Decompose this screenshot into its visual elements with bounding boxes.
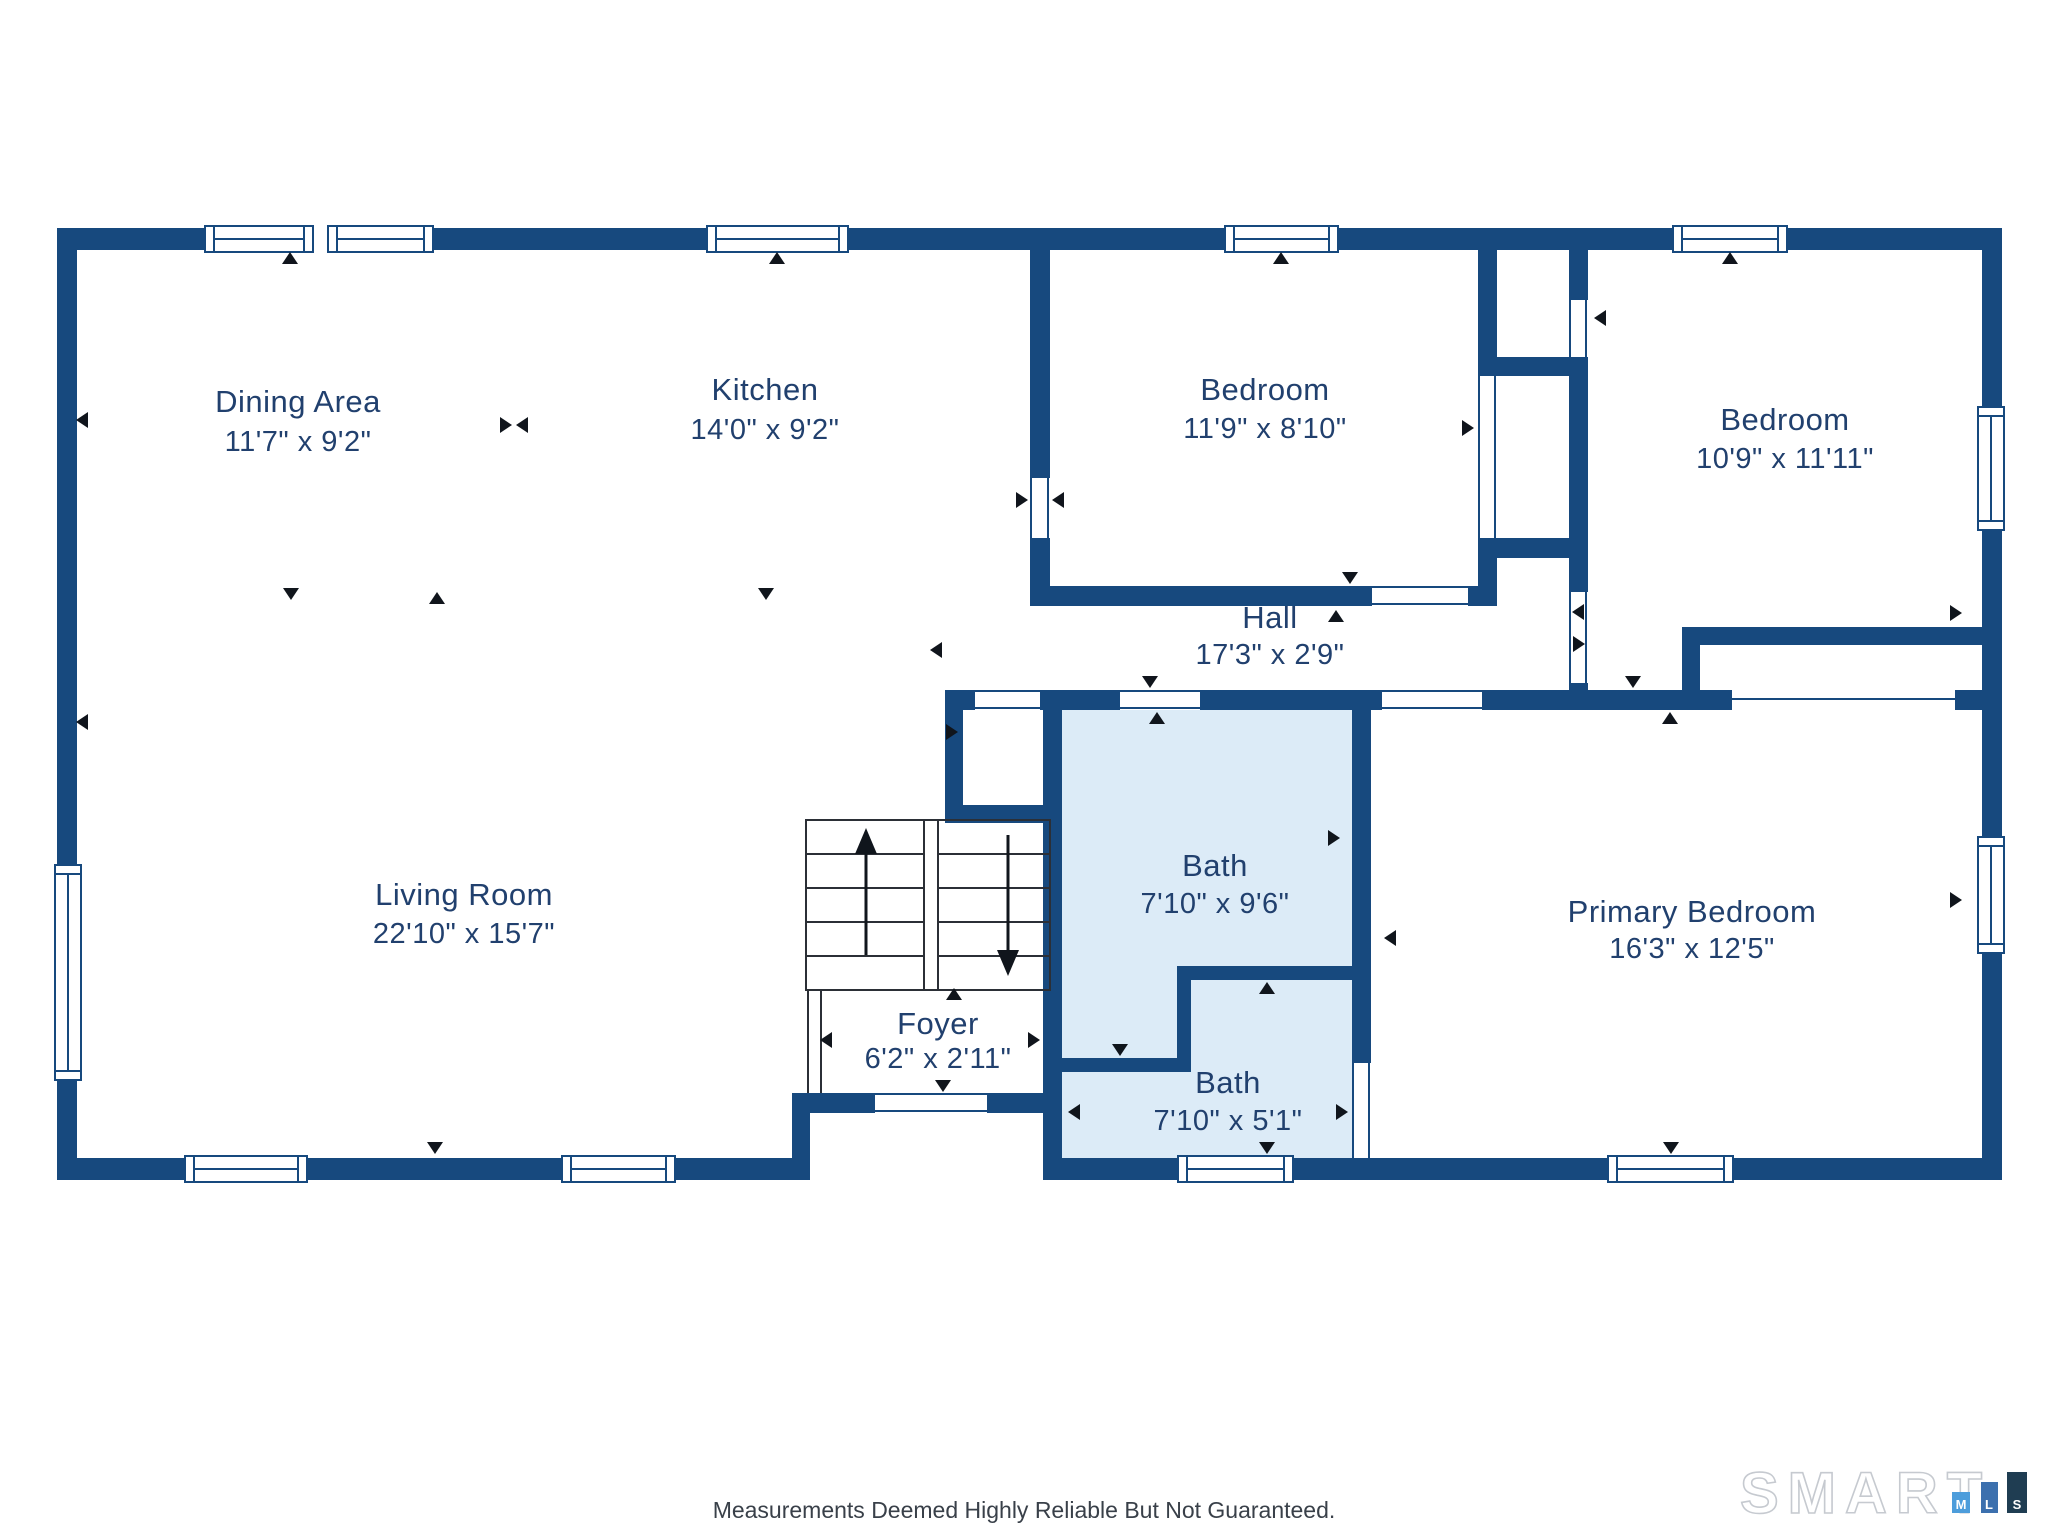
room-dims-bath-lower: 7'10" x 5'1" <box>1154 1105 1303 1137</box>
room-dims-bath-upper: 7'10" x 9'6" <box>1141 888 1290 920</box>
wall-exterior-bottom-left <box>57 1158 810 1180</box>
down-door-marker <box>935 1080 951 1092</box>
right-door-marker <box>1950 892 1962 908</box>
up-door-marker <box>1328 610 1344 622</box>
wall-kitchen-bedroom-a <box>1030 250 1050 478</box>
wall-primary-top-right-stub <box>1955 690 2002 710</box>
right-door-marker <box>1573 636 1585 652</box>
room-label-primary-bedroom: Primary Bedroom <box>1568 894 1817 929</box>
left-door-marker <box>76 714 88 730</box>
wall-bedroom2-bottom <box>1697 627 2002 645</box>
logo-letter-m: M <box>1956 1497 1967 1512</box>
wall-bath-right <box>1352 690 1371 1063</box>
up-door-marker <box>1273 252 1289 264</box>
left-door-marker <box>1384 930 1396 946</box>
room-dims-dining-area: 11'7" x 9'2" <box>225 426 372 458</box>
left-door-marker <box>1052 492 1064 508</box>
stairs-up-arrow-head <box>855 828 877 854</box>
wall-hall-bottom-a1 <box>945 690 975 710</box>
up-door-marker <box>769 252 785 264</box>
wall-hall-top <box>1050 586 1372 606</box>
wall-foyer-bottom-b <box>987 1093 1062 1113</box>
wall-bath-left <box>1043 690 1062 1158</box>
room-label-hall: Hall <box>1242 600 1297 635</box>
stair-rail-gap <box>924 821 938 989</box>
room-dims-bedroom-1: 11'9" x 8'10" <box>1183 413 1346 445</box>
floor-plan-svg: Dining Area 11'7" x 9'2" Kitchen 14'0" x… <box>0 0 2048 1536</box>
right-door-marker <box>1016 492 1028 508</box>
up-door-marker <box>1722 252 1738 264</box>
right-door-marker <box>1950 605 1962 621</box>
footer-disclaimer: Measurements Deemed Highly Reliable But … <box>713 1497 1336 1523</box>
wall-bath-step-v <box>1177 966 1191 1072</box>
down-door-marker <box>283 588 299 600</box>
room-label-bedroom-2: Bedroom <box>1720 402 1849 437</box>
left-door-marker <box>516 417 528 433</box>
right-door-marker <box>1028 1032 1040 1048</box>
wall-kitchen-bedroom-b <box>1030 538 1050 606</box>
room-label-bath-upper: Bath <box>1182 848 1248 883</box>
floor-plan-page: Dining Area 11'7" x 9'2" Kitchen 14'0" x… <box>0 0 2048 1536</box>
right-door-marker <box>500 417 512 433</box>
wall-porch-left <box>792 1093 810 1180</box>
down-door-marker <box>1342 572 1358 584</box>
room-dims-kitchen: 14'0" x 9'2" <box>691 414 840 446</box>
down-door-marker <box>1663 1142 1679 1154</box>
room-dims-bedroom-2: 10'9" x 11'11" <box>1696 443 1874 475</box>
room-label-bath-lower: Bath <box>1195 1065 1261 1100</box>
wall-bath-step-h <box>1190 966 1371 980</box>
smart-mls-logo: SMART M L S <box>1740 1461 2027 1526</box>
left-door-marker <box>1594 310 1606 326</box>
down-door-marker <box>1142 676 1158 688</box>
room-label-kitchen: Kitchen <box>712 372 819 407</box>
logo-letter-l: L <box>1985 1497 1993 1512</box>
room-dims-primary-bedroom: 16'3" x 12'5" <box>1609 933 1775 965</box>
stairs-down-arrow-head <box>997 950 1019 976</box>
right-door-marker <box>1462 420 1474 436</box>
wall-bath-lobe-bottom <box>1062 1058 1191 1072</box>
wall-closet-right-a <box>1569 250 1588 300</box>
room-label-bedroom-1: Bedroom <box>1200 372 1329 407</box>
down-door-marker <box>427 1142 443 1154</box>
room-dims-foyer: 6'2" x 2'11" <box>865 1043 1012 1075</box>
up-door-marker <box>1662 712 1678 724</box>
logo-letter-s: S <box>2013 1497 2022 1512</box>
left-door-marker <box>930 642 942 658</box>
down-door-marker <box>758 588 774 600</box>
room-dims-hall: 17'3" x 2'9" <box>1196 639 1345 671</box>
down-door-marker <box>1625 676 1641 688</box>
left-door-marker <box>1572 604 1584 620</box>
room-label-foyer: Foyer <box>897 1006 979 1041</box>
room-label-living-room: Living Room <box>375 877 553 912</box>
wall-primary-top <box>1482 690 1732 710</box>
room-dims-living-room: 22'10" x 15'7" <box>373 918 555 950</box>
wall-closet-divider-1 <box>1478 357 1588 376</box>
up-door-marker <box>282 252 298 264</box>
wall-closet-divider-2 <box>1478 538 1588 558</box>
room-label-dining-area: Dining Area <box>215 384 381 419</box>
left-door-marker <box>76 412 88 428</box>
wall-hall-top-stub <box>1468 586 1478 606</box>
up-door-marker <box>429 592 445 604</box>
